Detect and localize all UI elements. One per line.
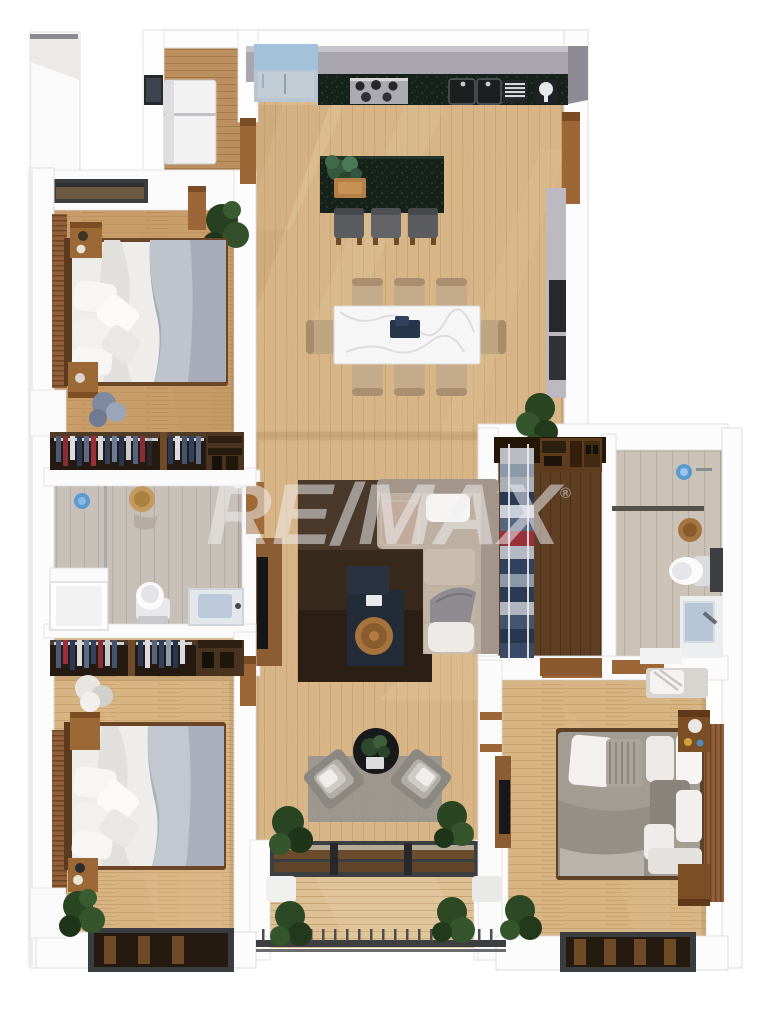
svg-text:RE/MAX: RE/MAX	[206, 467, 565, 563]
svg-text:®: ®	[560, 485, 571, 502]
